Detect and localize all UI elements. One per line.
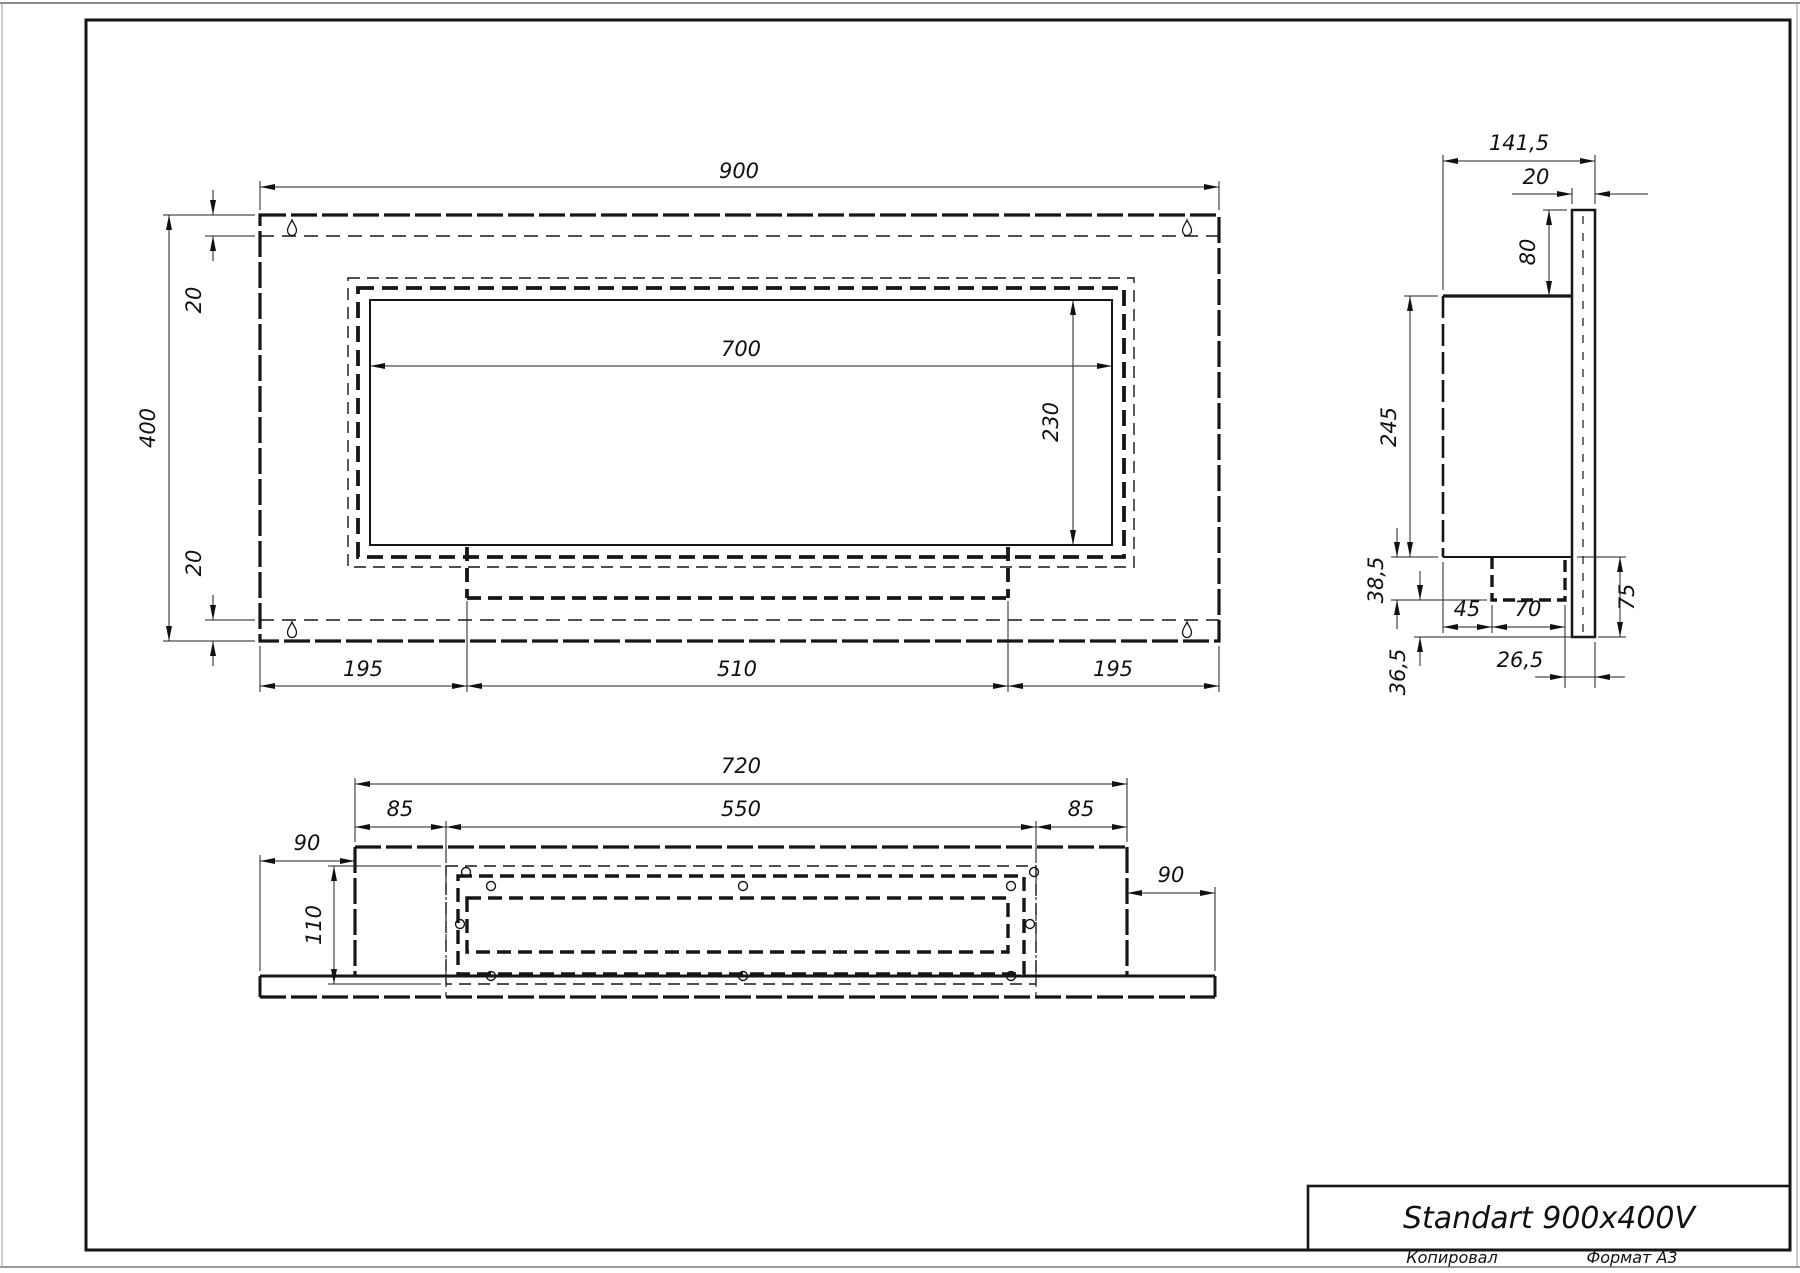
dim-front-top-inset: 20 xyxy=(182,190,255,313)
dim-label: 36,5 xyxy=(1386,649,1410,696)
dim-label: 700 xyxy=(721,337,761,361)
opening-outer-hidden-frame xyxy=(348,278,1134,567)
dim-side-body: 245 xyxy=(1377,296,1438,557)
keyhole-icon xyxy=(1183,220,1192,236)
dim-front-width: 900 xyxy=(260,159,1219,210)
bottom-cutout-hidden xyxy=(446,866,1036,984)
dim-label: 26,5 xyxy=(1497,648,1544,672)
title-block: Standart 900x400V Копировал Формат А3 xyxy=(1308,1186,1790,1267)
dim-label: 80 xyxy=(1516,239,1540,266)
dim-opening-width: 700 xyxy=(370,337,1112,366)
dim-opening-height: 230 xyxy=(1039,300,1073,545)
copied-label: Копировал xyxy=(1406,1248,1497,1267)
drawing-title: Standart 900x400V xyxy=(1403,1201,1698,1236)
format-label: Формат А3 xyxy=(1586,1248,1677,1267)
burner-hidden-front xyxy=(467,547,1008,598)
hole-icon xyxy=(456,920,465,929)
dim-label: 20 xyxy=(1523,165,1550,189)
keyhole-icon xyxy=(288,622,297,638)
dim-label: 110 xyxy=(302,905,326,945)
drawing-sheet: 900 400 20 20 700 xyxy=(0,0,1800,1273)
dim-label: 900 xyxy=(719,159,759,183)
dim-side-rear: 26,5 xyxy=(1497,642,1625,688)
side-burner-box xyxy=(1492,557,1565,600)
dim-label: 90 xyxy=(294,831,321,855)
dim-side-top: 80 xyxy=(1516,210,1567,296)
opening-bold-hidden-frame xyxy=(358,288,1124,557)
dim-bottom-flange-right: 90 xyxy=(1127,863,1215,971)
bottom-burner-opening-hidden xyxy=(467,898,1008,952)
technical-drawing: 900 400 20 20 700 xyxy=(0,0,1800,1273)
mounting-holes xyxy=(456,868,1039,981)
dim-label: 75 xyxy=(1615,584,1639,611)
dim-label: 510 xyxy=(717,657,757,681)
dim-label: 85 xyxy=(387,797,414,821)
dim-bottom-depth: 110 xyxy=(302,866,441,984)
dim-label: 90 xyxy=(1158,863,1185,887)
side-view: 141,5 20 80 245 38,5 xyxy=(1364,131,1648,695)
dim-label: 720 xyxy=(721,754,761,778)
dim-label: 141,5 xyxy=(1489,131,1549,155)
hole-icon xyxy=(739,882,748,891)
dim-bottom-row: 85 550 85 xyxy=(355,797,1127,861)
dim-front-bottom-inset: 20 xyxy=(182,550,255,666)
drawing-frame xyxy=(86,20,1790,1250)
front-body-outline xyxy=(260,215,1219,641)
dim-label: 20 xyxy=(182,287,206,314)
keyhole-icon xyxy=(1183,622,1192,638)
dim-side-plate: 20 xyxy=(1512,165,1648,204)
dim-label: 70 xyxy=(1515,597,1542,621)
dim-label: 195 xyxy=(1093,657,1133,681)
dim-label: 230 xyxy=(1039,402,1063,442)
dim-side-below: 75 xyxy=(1577,557,1639,637)
hole-icon xyxy=(1030,868,1039,877)
hole-icon xyxy=(487,882,496,891)
dim-label: 38,5 xyxy=(1364,557,1388,604)
dim-label: 85 xyxy=(1068,797,1095,821)
front-view: 900 400 20 20 700 xyxy=(136,159,1219,692)
hole-icon xyxy=(1007,882,1016,891)
dim-label: 20 xyxy=(182,550,206,577)
dim-label: 195 xyxy=(343,657,383,681)
keyhole-icon xyxy=(288,220,297,236)
bottom-view: 720 85 550 85 90 110 xyxy=(260,754,1215,997)
dim-label: 550 xyxy=(721,797,761,821)
dim-label: 45 xyxy=(1454,597,1481,621)
dim-bottom-flange-left: 90 xyxy=(260,831,355,971)
dim-label: 400 xyxy=(136,408,160,448)
sheet-border xyxy=(0,3,1800,1267)
dim-front-bottom-row: 195 510 195 xyxy=(260,601,1219,692)
hole-icon xyxy=(1026,920,1035,929)
dim-label: 245 xyxy=(1377,407,1401,447)
